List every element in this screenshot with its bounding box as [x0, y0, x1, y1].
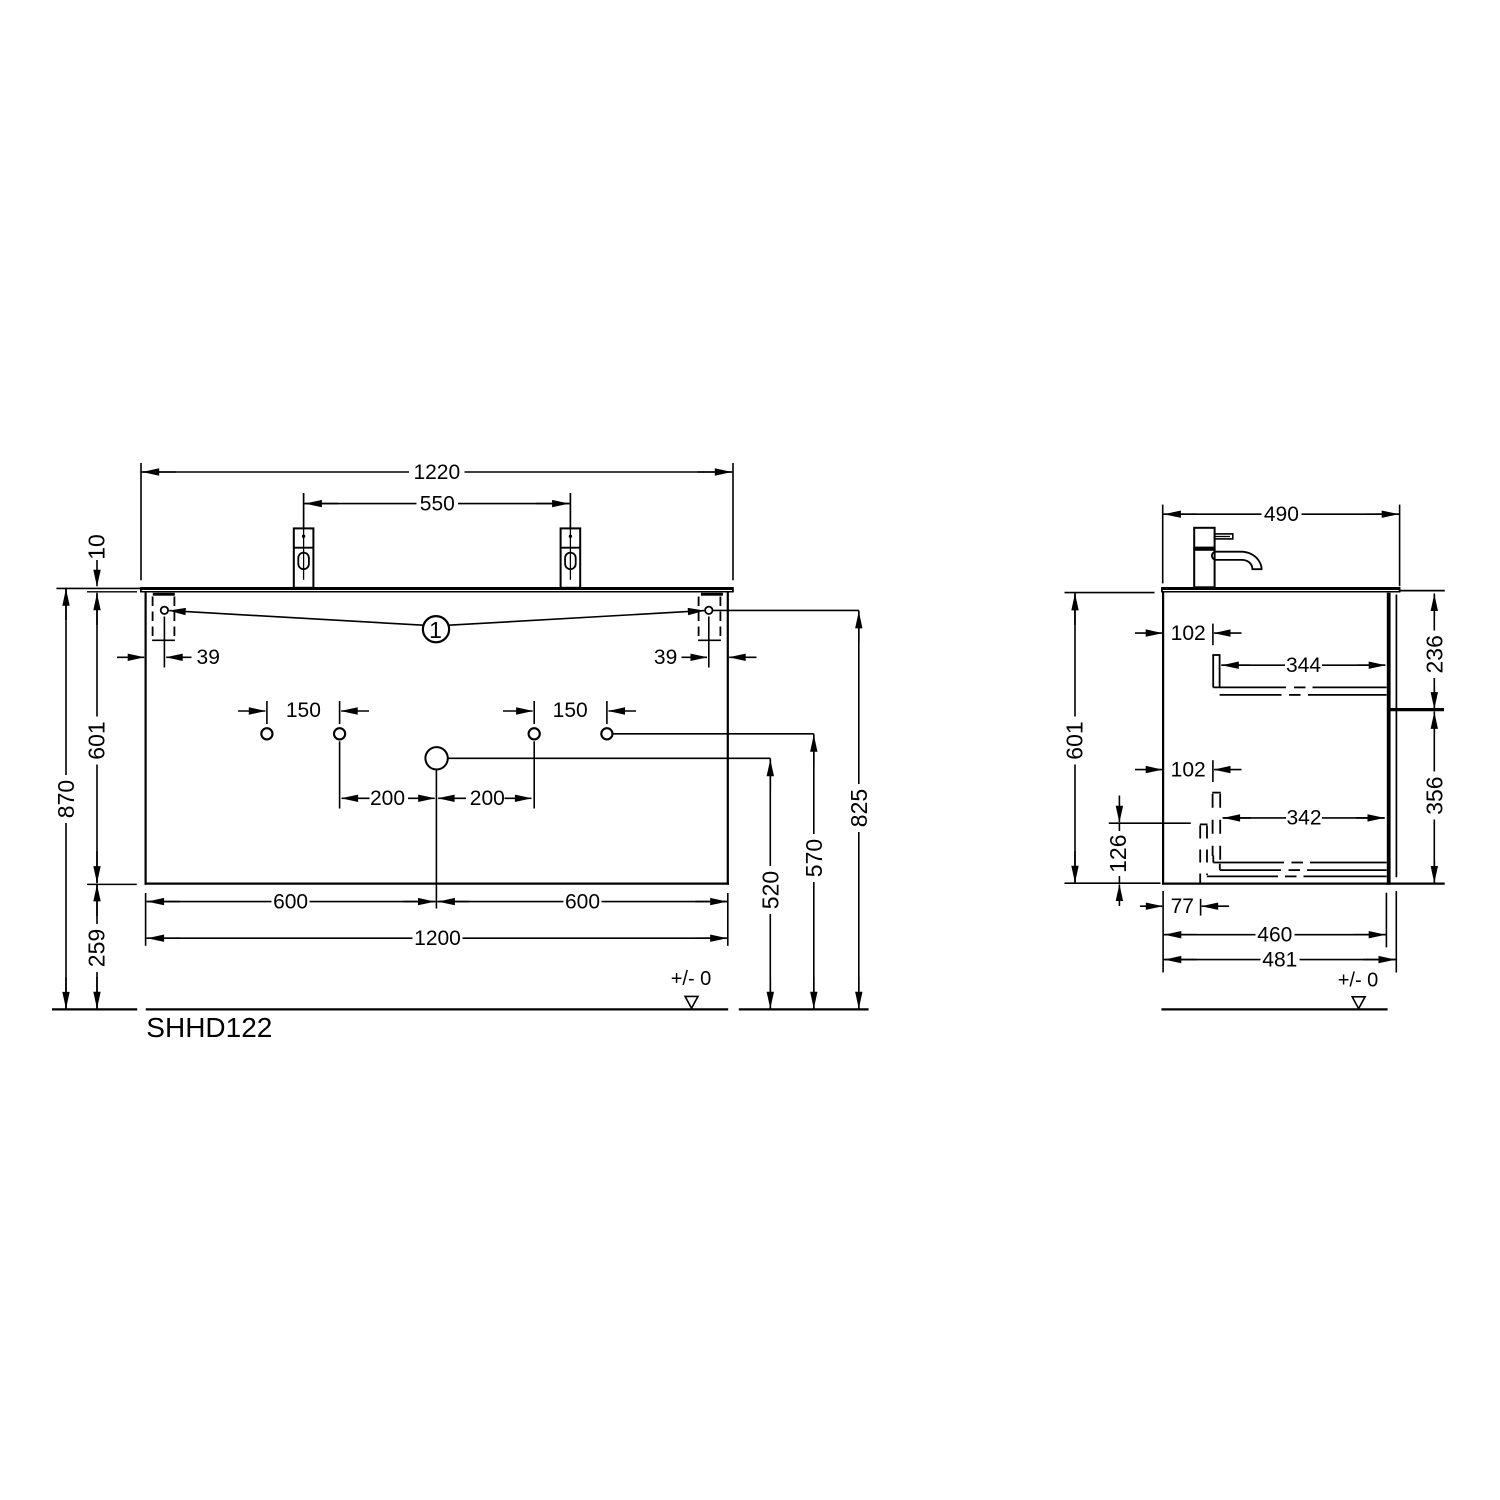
svg-text:870: 870 — [53, 780, 79, 818]
svg-text:481: 481 — [1262, 948, 1297, 971]
svg-text:600: 600 — [273, 890, 308, 913]
svg-text:550: 550 — [420, 493, 455, 516]
svg-text:460: 460 — [1257, 924, 1292, 947]
svg-text:600: 600 — [565, 890, 600, 913]
svg-text:1200: 1200 — [414, 927, 461, 950]
svg-text:236: 236 — [1421, 635, 1447, 673]
svg-text:356: 356 — [1421, 776, 1447, 814]
svg-text:1220: 1220 — [413, 461, 460, 484]
svg-text:150: 150 — [553, 699, 588, 722]
svg-text:126: 126 — [1105, 835, 1131, 873]
svg-text:150: 150 — [286, 699, 321, 722]
svg-text:39: 39 — [654, 646, 677, 669]
svg-text:200: 200 — [470, 787, 505, 810]
svg-text:825: 825 — [846, 789, 872, 827]
svg-text:200: 200 — [370, 787, 405, 810]
svg-text:490: 490 — [1264, 503, 1299, 526]
svg-text:344: 344 — [1286, 654, 1321, 677]
svg-text:520: 520 — [757, 871, 783, 909]
svg-text:77: 77 — [1171, 895, 1194, 918]
svg-text:601: 601 — [1062, 721, 1088, 759]
svg-text:102: 102 — [1171, 758, 1206, 781]
svg-text:1: 1 — [429, 617, 442, 643]
svg-text:102: 102 — [1171, 622, 1206, 645]
svg-text:342: 342 — [1286, 807, 1321, 830]
svg-text:SHHD122: SHHD122 — [146, 1012, 272, 1043]
svg-text:+/- 0: +/- 0 — [671, 968, 712, 990]
svg-text:601: 601 — [84, 721, 110, 759]
svg-text:39: 39 — [197, 646, 220, 669]
svg-text:259: 259 — [84, 929, 110, 967]
svg-text:10: 10 — [84, 534, 110, 560]
svg-text:+/- 0: +/- 0 — [1338, 969, 1379, 991]
svg-text:570: 570 — [801, 839, 827, 877]
